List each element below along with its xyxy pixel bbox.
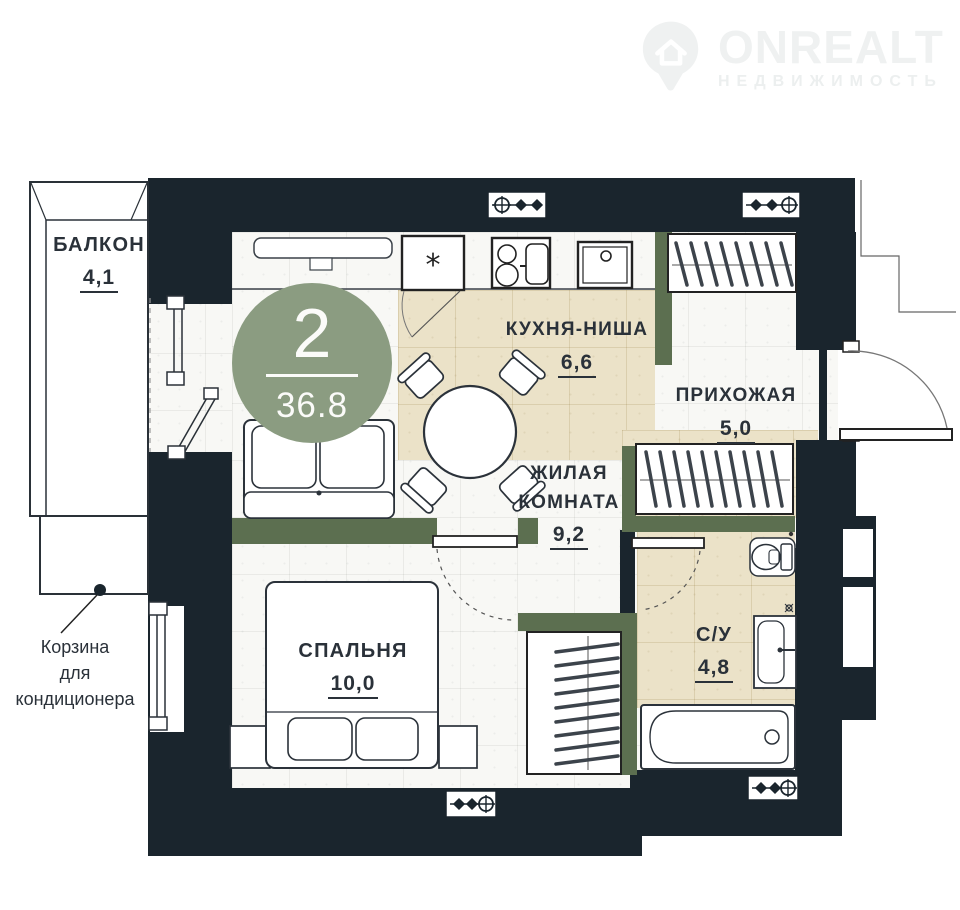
kitchen-label: КУХНЯ-НИША 6,6 <box>482 316 672 378</box>
hallway-name: ПРИХОЖАЯ <box>656 382 816 411</box>
house-pin-icon <box>638 18 704 96</box>
hallway-label: ПРИХОЖАЯ 5,0 <box>656 382 816 444</box>
balcony-label: БАЛКОН 4,1 <box>42 230 156 293</box>
exterior-outline <box>861 180 956 312</box>
badge-rooms-count: 2 <box>293 300 332 367</box>
balcony-area: 4,1 <box>80 266 118 293</box>
wall-bottom-bath <box>630 770 842 836</box>
wall-top-left <box>148 178 232 304</box>
wall-bath-right <box>795 548 842 778</box>
partition-bath-west <box>620 613 637 775</box>
living-room-area: 9,2 <box>550 523 588 550</box>
shaft-niche <box>842 528 874 578</box>
bedroom-window-bay <box>150 606 184 732</box>
watermark-logo: ONREALT НЕДВИЖИМОСТЬ <box>638 18 944 96</box>
balcony-name: БАЛКОН <box>42 230 156 260</box>
bathroom-name: С/У <box>664 620 764 650</box>
shaft-niche <box>842 586 874 668</box>
badge-divider <box>266 374 358 377</box>
floor-window-bay <box>148 296 232 456</box>
bathroom-label: С/У 4,8 <box>664 620 764 683</box>
hallway-area: 5,0 <box>717 417 755 444</box>
partition-bedroom <box>232 518 437 544</box>
bathroom-area: 4,8 <box>695 656 733 683</box>
living-room-label: ЖИЛАЯ КОМНАТА 9,2 <box>502 460 636 550</box>
watermark-brand: ONREALT <box>718 24 944 70</box>
ac-basket <box>40 516 148 633</box>
bedroom-label: СПАЛЬНЯ 10,0 <box>285 636 421 699</box>
floor-plan: ONREALT НЕДВИЖИМОСТЬ <box>0 0 960 910</box>
wall-bottom <box>148 788 642 856</box>
watermark-subtitle: НЕДВИЖИМОСТЬ <box>718 73 944 91</box>
entrance-door <box>840 341 952 441</box>
apartment-badge: 2 36.8 <box>232 283 392 443</box>
wall-top <box>148 178 855 232</box>
living-room-name: ЖИЛАЯ КОМНАТА <box>502 460 636 517</box>
badge-total-area: 36.8 <box>276 386 348 426</box>
kitchen-area: 6,6 <box>558 351 596 378</box>
bedroom-name: СПАЛЬНЯ <box>285 636 421 666</box>
wall-door-jamb <box>819 345 827 440</box>
partition-bath-nw <box>518 613 622 631</box>
kitchen-name: КУХНЯ-НИША <box>482 316 672 345</box>
wall-left-mid <box>148 452 232 522</box>
partition-closet-bottom <box>622 516 795 532</box>
ac-basket-callout: Корзина для кондиционера <box>4 634 146 712</box>
wall-right-top <box>796 232 856 350</box>
bedroom-area: 10,0 <box>328 672 379 699</box>
